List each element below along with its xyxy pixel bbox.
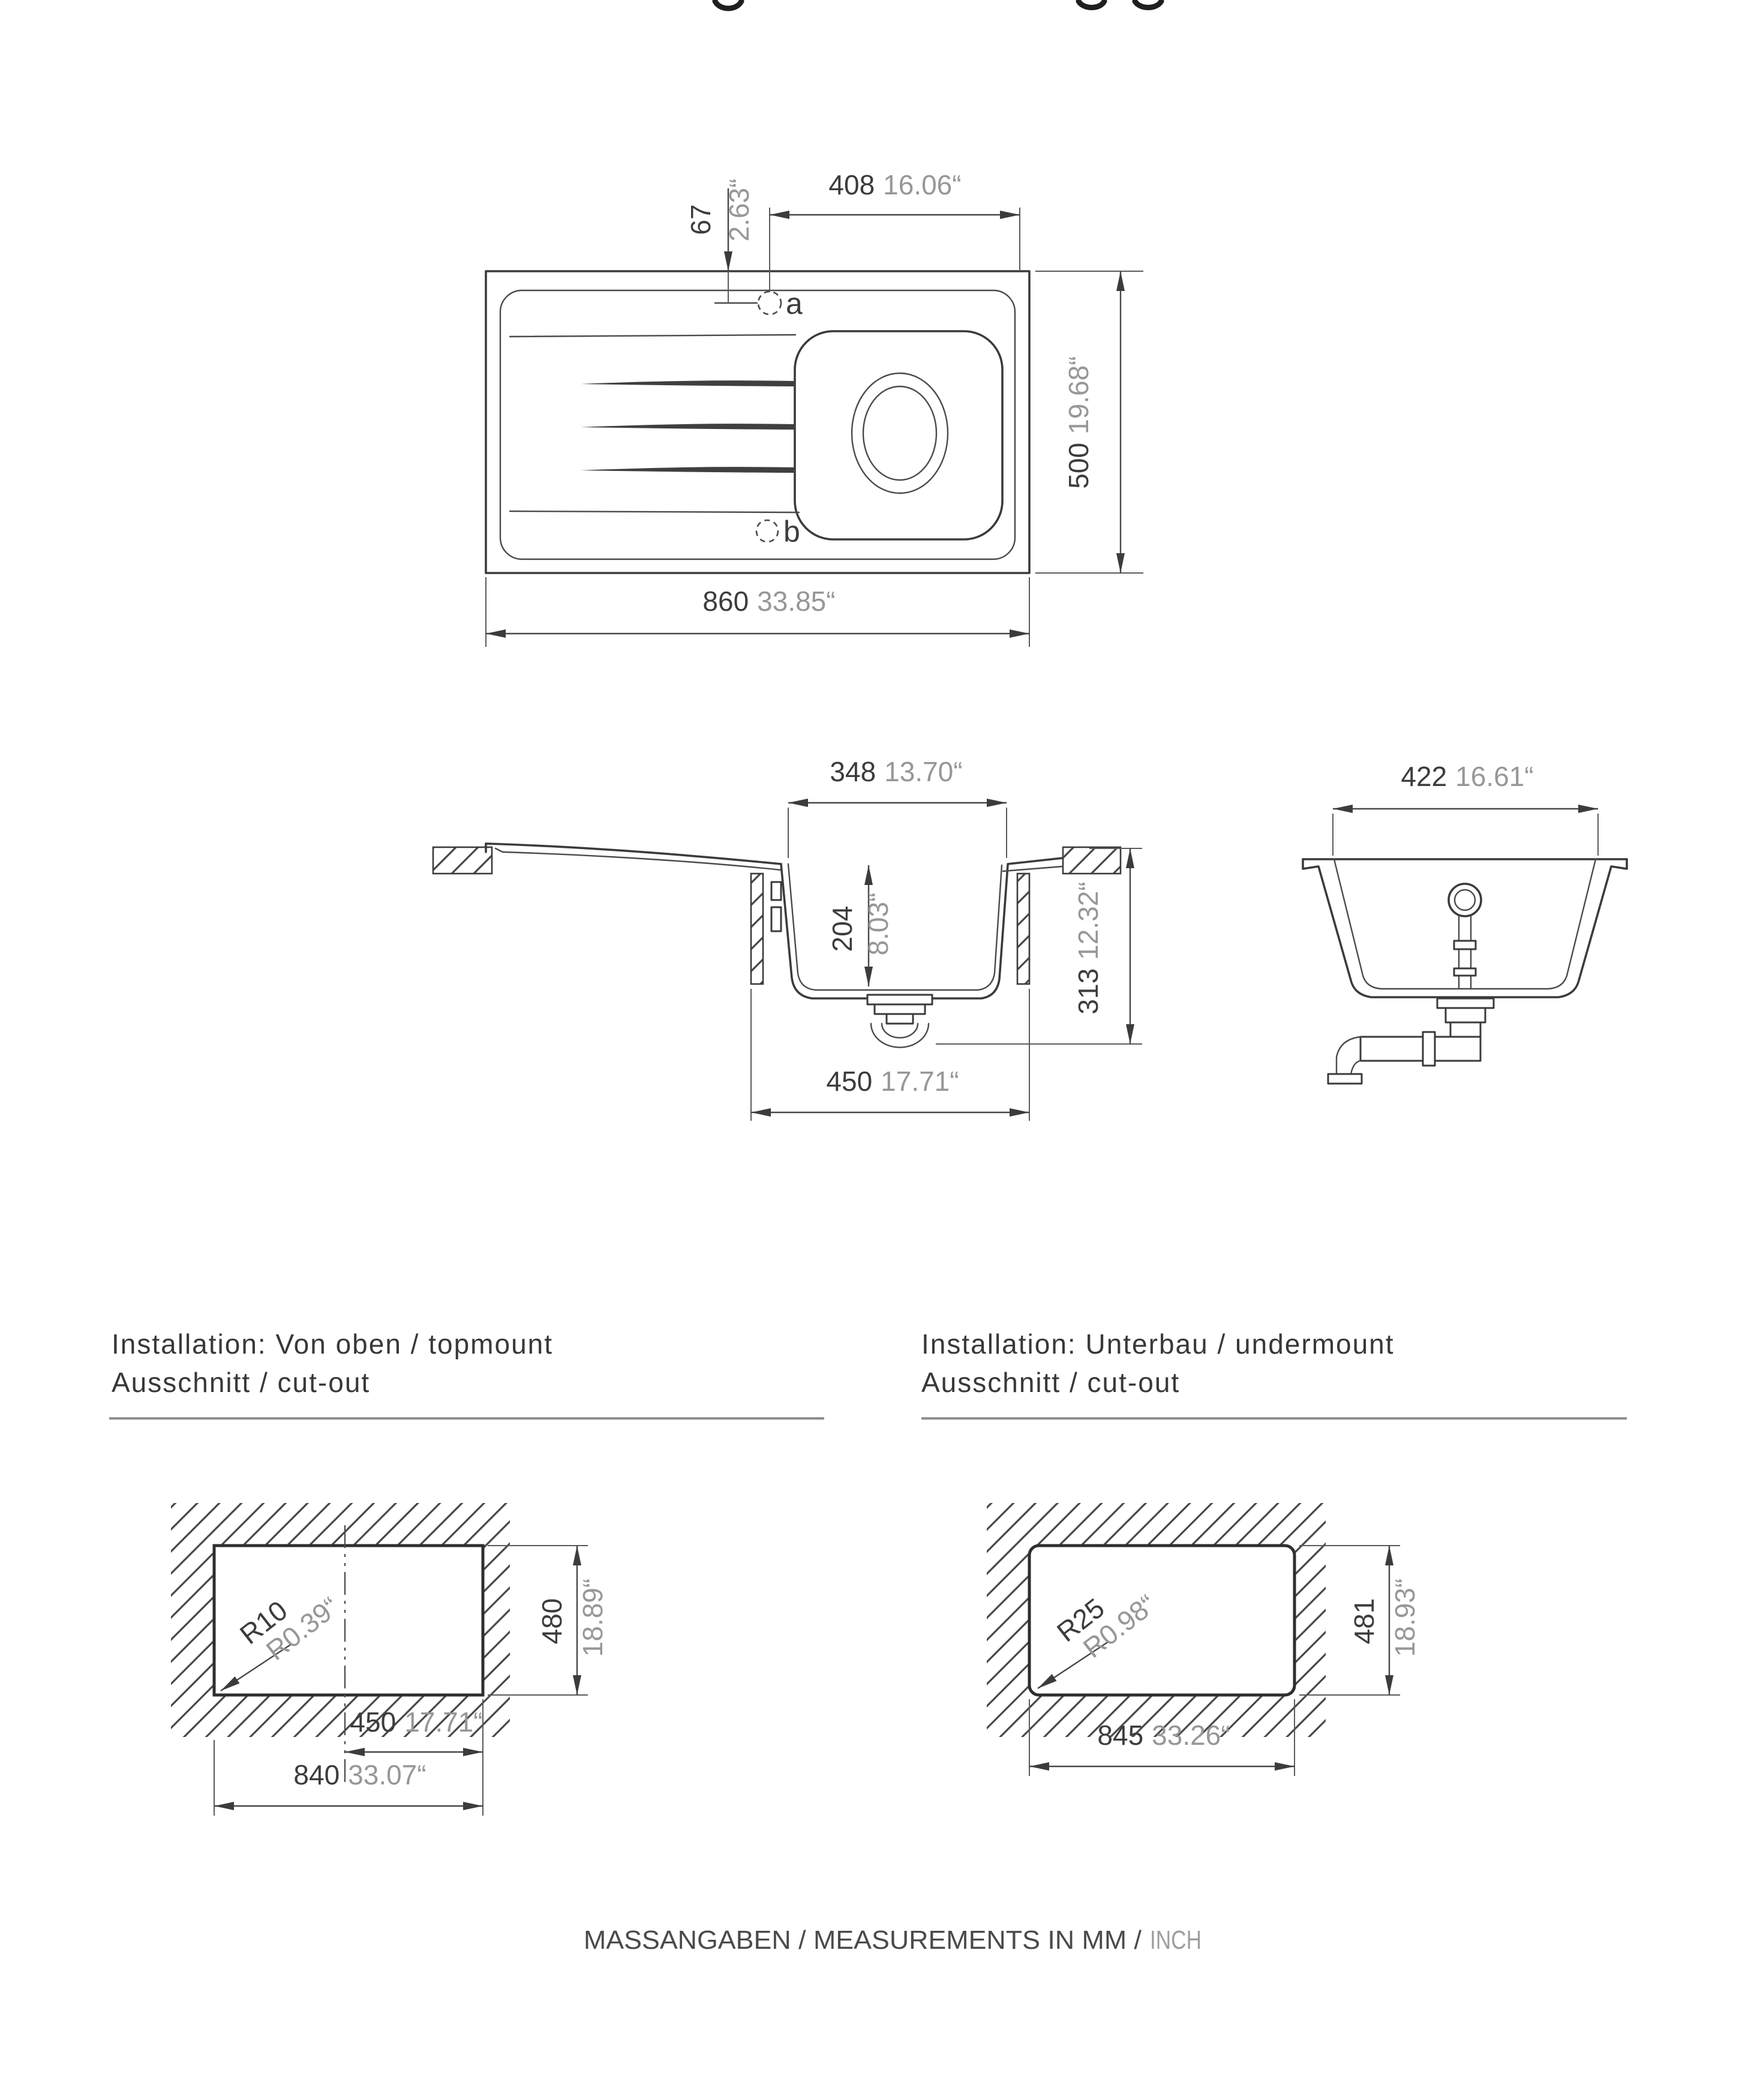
drain-elbow xyxy=(1328,998,1494,1084)
footer-note: MASSANGABEN / MEASUREMENTS IN MM / INCH xyxy=(584,1925,1202,1955)
bowl-outer-wall xyxy=(781,864,1008,998)
topmount-cutout-diagram: R10 R0.39“ 480 18.89“ 45017.71“ 84033.07… xyxy=(171,1503,608,1816)
top-view: a b 40816.06“ 67 2.63“ 50019.68“ xyxy=(486,169,1143,647)
drain-trap xyxy=(867,995,932,1048)
overflow-pipe xyxy=(1449,884,1481,989)
dimension-450-cutout-label: 45017.71“ xyxy=(350,1706,482,1738)
sink-profile xyxy=(486,844,1063,998)
dimension-67: 67 2.63“ xyxy=(685,179,755,303)
side-section-view: 34813.70“ 204 8.03“ 31312.32“ 45017.71“ xyxy=(433,756,1142,1121)
dimension-313-label: 31312.32“ xyxy=(1073,881,1104,1014)
undermount-heading-line1: Installation: Unterbau / undermount xyxy=(921,1328,1395,1360)
counter-block-right xyxy=(1063,847,1121,874)
technical-drawing: a b 40816.06“ 67 2.63“ 50019.68“ xyxy=(0,0,1751,2100)
bowl-inner-wall xyxy=(788,864,1002,990)
tap-hole-b-label: b xyxy=(783,515,800,548)
installation-topmount-heading: Installation: Von oben / topmount Aussch… xyxy=(109,1328,824,1418)
tap-hole-b: b xyxy=(756,515,800,548)
tap-hole-a-label: a xyxy=(786,287,803,320)
dimension-860-label: 86033.85“ xyxy=(702,586,835,617)
cabinet-panel-right xyxy=(1017,874,1029,984)
footer-inch-text: INCH xyxy=(1150,1925,1202,1955)
drain-outer xyxy=(852,373,948,493)
overflow-fitting xyxy=(771,882,781,900)
dimension-348: 34813.70“ xyxy=(788,756,1007,858)
dimension-450-cutout: 45017.71“ xyxy=(345,1699,483,1762)
dimension-67-mm: 67 xyxy=(685,204,716,235)
installation-undermount-heading: Installation: Unterbau / undermount Auss… xyxy=(921,1328,1627,1418)
dimension-67-inch: 2.63“ xyxy=(723,179,755,242)
counter-block-left xyxy=(433,847,492,874)
topmount-heading-line2: Ausschnitt / cut-out xyxy=(112,1367,370,1398)
dimension-422-label: 42216.61“ xyxy=(1401,761,1533,792)
cropped-title-fragments xyxy=(715,1,1161,8)
undermount-cutout-diagram: R25 R0.98“ 481 18.93“ 84533.26“ xyxy=(987,1503,1420,1776)
dimension-481-inch: 18.93“ xyxy=(1389,1579,1420,1657)
dimension-204-mm: 204 xyxy=(827,906,858,952)
footer-measurements-text: MASSANGABEN / MEASUREMENTS IN MM / xyxy=(584,1925,1142,1955)
undermount-heading-line2: Ausschnitt / cut-out xyxy=(921,1367,1180,1398)
dimension-860: 86033.85“ xyxy=(486,577,1029,647)
dimension-204-inch: 8.03“ xyxy=(863,893,894,956)
dimension-500-label: 50019.68“ xyxy=(1063,356,1094,488)
dimension-204: 204 8.03“ xyxy=(827,865,894,986)
drain-inner xyxy=(863,386,936,480)
dimension-408-label: 40816.06“ xyxy=(828,169,961,200)
dimension-313: 31312.32“ xyxy=(936,848,1142,1044)
dimension-480-inch: 18.89“ xyxy=(577,1579,608,1657)
dimension-422: 42216.61“ xyxy=(1333,761,1598,856)
overflow-fitting-lower xyxy=(771,907,781,931)
sink-outer-edge xyxy=(486,271,1029,573)
dimension-500: 50019.68“ xyxy=(1035,271,1143,573)
bowl xyxy=(795,331,1002,539)
drainboard-grooves xyxy=(510,335,799,512)
dimension-450-section-label: 45017.71“ xyxy=(826,1066,959,1097)
topmount-heading-line1: Installation: Von oben / topmount xyxy=(112,1328,553,1360)
front-section-view: 42216.61“ xyxy=(1303,761,1627,1084)
dimension-481-mm: 481 xyxy=(1348,1598,1380,1645)
dimension-sheet: a b 40816.06“ 67 2.63“ 50019.68“ xyxy=(0,0,1751,2100)
dimension-840-label: 84033.07“ xyxy=(293,1759,426,1790)
cabinet-panel-left xyxy=(751,874,763,984)
dimension-480-mm: 480 xyxy=(536,1598,567,1645)
dimension-845-label: 84533.26“ xyxy=(1097,1720,1230,1751)
dimension-408: 40816.06“ xyxy=(770,169,1020,292)
dimension-348-label: 34813.70“ xyxy=(830,756,962,787)
